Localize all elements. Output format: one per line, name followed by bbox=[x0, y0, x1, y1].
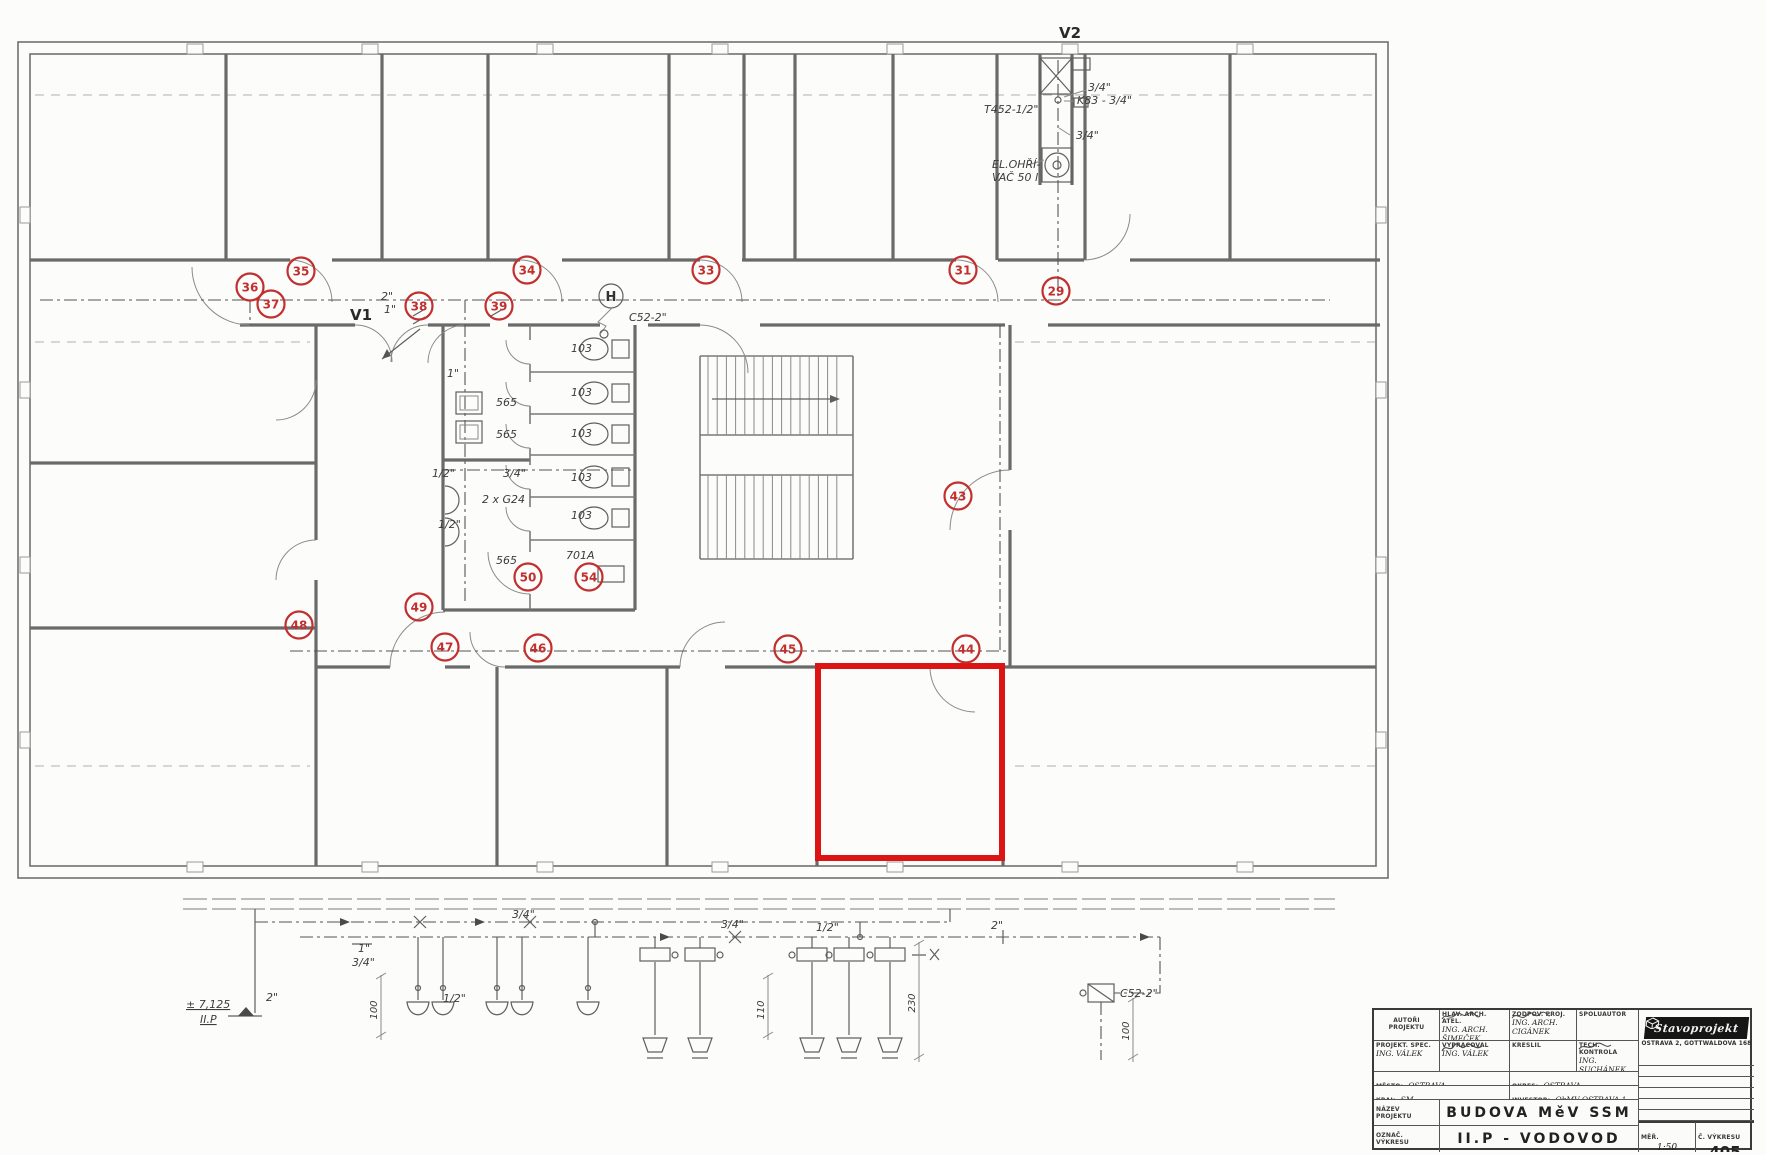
hydrant-symbol: H bbox=[598, 284, 623, 338]
oznac-label: OZNAČ. VÝKRESU bbox=[1376, 1132, 1437, 1146]
annotation-label: 3/4" bbox=[1088, 81, 1111, 94]
annotation-label: 103 bbox=[571, 386, 592, 399]
svg-text:37: 37 bbox=[263, 298, 280, 312]
svg-text:39: 39 bbox=[491, 300, 508, 314]
room-marker-47[interactable]: 47 bbox=[432, 634, 459, 661]
svg-text:48: 48 bbox=[291, 619, 308, 633]
annotation-label: 103 bbox=[571, 427, 592, 440]
room-marker-49[interactable]: 49 bbox=[406, 594, 433, 621]
projspec-label: PROJEKT. SPEC. bbox=[1376, 1042, 1437, 1049]
door-arcs bbox=[192, 214, 1130, 712]
building-outline bbox=[18, 42, 1388, 878]
annotation-label: 2" bbox=[381, 290, 393, 303]
title-block: AUTOŘI PROJEKTU HLAV. ARCH. ATEL. ING. A… bbox=[1372, 1008, 1752, 1150]
svg-text:31: 31 bbox=[955, 264, 972, 278]
annotation-label: 1" bbox=[358, 942, 370, 955]
annotation-label: 3/4" bbox=[512, 908, 535, 921]
highlight-rect[interactable] bbox=[818, 666, 1002, 858]
sanitary-core bbox=[413, 309, 629, 582]
pipe-schematic bbox=[183, 899, 1335, 1062]
tech-value: ING. SUCHÁNEK bbox=[1579, 1056, 1636, 1072]
annotation-label: C52-2" bbox=[1120, 987, 1158, 1000]
annotation-label: 565 bbox=[496, 396, 517, 409]
annotation-label: T452-1/2" bbox=[984, 103, 1038, 116]
annotation-label: 1/2" bbox=[438, 518, 461, 531]
annotation-label: 2" bbox=[991, 919, 1003, 932]
mer-value: 1:50 bbox=[1641, 1143, 1693, 1152]
annotation-label: 565 bbox=[496, 554, 517, 567]
svg-text:34: 34 bbox=[519, 264, 536, 278]
room-marker-37[interactable]: 37 bbox=[258, 291, 285, 318]
plan-annotations: 3/4"K83 - 3/4"T452-1/2"3/4"EL.OHŘÍ-VAČ 5… bbox=[381, 81, 1132, 567]
dimension-label: 100 bbox=[1121, 1021, 1132, 1040]
annotation-label: 2 x G24 bbox=[482, 493, 525, 506]
annotation-label: 1/2" bbox=[816, 921, 839, 934]
dimension-label: 230 bbox=[907, 993, 918, 1012]
room-marker-43[interactable]: 43 bbox=[945, 483, 972, 510]
kreslil-label: KRESLIL bbox=[1512, 1042, 1574, 1049]
svg-text:45: 45 bbox=[780, 643, 797, 657]
annotation-label: 565 bbox=[496, 428, 517, 441]
svg-text:47: 47 bbox=[437, 641, 454, 655]
floorplan-svg: H V2 V1 bbox=[0, 0, 1766, 1155]
stavoprojekt-logo: Stavoprojekt bbox=[1644, 1017, 1749, 1039]
room-marker-50[interactable]: 50 bbox=[515, 564, 542, 591]
stairwell bbox=[708, 356, 840, 559]
annotation-label: 103 bbox=[571, 509, 592, 522]
annotation-label: EL.OHŘÍ- bbox=[992, 158, 1040, 171]
room-marker-39[interactable]: 39 bbox=[486, 293, 513, 320]
annotation-label: K83 - 3/4" bbox=[1077, 94, 1132, 107]
svg-text:33: 33 bbox=[698, 264, 715, 278]
room-marker-44[interactable]: 44 bbox=[953, 636, 980, 663]
annotation-label: 3/4" bbox=[352, 956, 375, 969]
interior-walls bbox=[30, 54, 1380, 866]
room-marker-48[interactable]: 48 bbox=[286, 612, 313, 639]
nazev-label: NÁZEV PROJEKTU bbox=[1376, 1106, 1437, 1120]
svg-text:35: 35 bbox=[293, 265, 310, 279]
annotation-label: VAČ 50 l bbox=[992, 171, 1038, 184]
svg-text:50: 50 bbox=[520, 571, 537, 585]
annotation-label: 701A bbox=[566, 549, 595, 562]
spolu-label: SPOLUAUTOR bbox=[1579, 1011, 1636, 1018]
beam-lines bbox=[35, 95, 1375, 766]
drawing-name: II.P - VODOVOD bbox=[1442, 1127, 1636, 1151]
svg-text:43: 43 bbox=[950, 490, 967, 504]
annotation-label: II.P bbox=[200, 1013, 217, 1026]
hlav-value: ING. ARCH. ŠIMEČEK bbox=[1442, 1025, 1507, 1041]
annotation-label: 103 bbox=[571, 342, 592, 355]
vykres-label: Č. VÝKRESU bbox=[1698, 1134, 1740, 1141]
annotation-label: 1" bbox=[384, 303, 396, 316]
annotation-label: ± 7,125 bbox=[186, 998, 230, 1011]
room-marker-45[interactable]: 45 bbox=[775, 636, 802, 663]
room-marker-38[interactable]: 38 bbox=[406, 293, 433, 320]
svg-text:44: 44 bbox=[958, 643, 975, 657]
sheet-number: 405 bbox=[1698, 1143, 1752, 1152]
annotation-label: 1" bbox=[447, 367, 459, 380]
logo-text: Stavoprojekt bbox=[1654, 1022, 1740, 1035]
dimension-label: 110 bbox=[756, 1000, 767, 1019]
schematic-annotations: 3/4"3/4"1/2"2"1"3/4"1/2"2"± 7,125II.PC52… bbox=[186, 908, 1158, 1041]
titleblock-authors-label: AUTOŘI PROJEKTU bbox=[1376, 1017, 1437, 1031]
annotation-label: 1/2" bbox=[443, 992, 466, 1005]
annotation-label: 3/4" bbox=[503, 467, 526, 480]
svg-text:54: 54 bbox=[581, 571, 598, 585]
room-marker-46[interactable]: 46 bbox=[525, 635, 552, 662]
annotation-label: 1/2" bbox=[432, 467, 455, 480]
svg-text:38: 38 bbox=[411, 300, 428, 314]
projspec-value: ING. VÁLEK bbox=[1376, 1049, 1437, 1058]
svg-text:36: 36 bbox=[242, 281, 259, 295]
dimension-label: 100 bbox=[369, 1000, 380, 1019]
project-name: BUDOVA MěV SSM bbox=[1442, 1101, 1636, 1124]
annotation-label: C52-2" bbox=[629, 311, 667, 324]
svg-text:49: 49 bbox=[411, 601, 428, 615]
drawing-sheet: H V2 V1 bbox=[0, 0, 1766, 1155]
svg-text:46: 46 bbox=[530, 642, 547, 656]
water-pipes bbox=[40, 60, 1330, 651]
annotation-label: 103 bbox=[571, 471, 592, 484]
riser-v1-label: V1 bbox=[350, 306, 372, 324]
svg-text:29: 29 bbox=[1048, 285, 1065, 299]
annotation-label: 3/4" bbox=[1076, 129, 1099, 142]
hydrant-letter: H bbox=[606, 290, 617, 305]
logo-address: OSTRAVA 2, GOTTWALDOVA 168 bbox=[1641, 1041, 1752, 1047]
riser-v2-label: V2 bbox=[1059, 24, 1081, 42]
annotation-label: 3/4" bbox=[721, 918, 744, 931]
mer-label: MĚŘ. bbox=[1641, 1134, 1659, 1141]
annotation-label: 2" bbox=[266, 991, 278, 1004]
